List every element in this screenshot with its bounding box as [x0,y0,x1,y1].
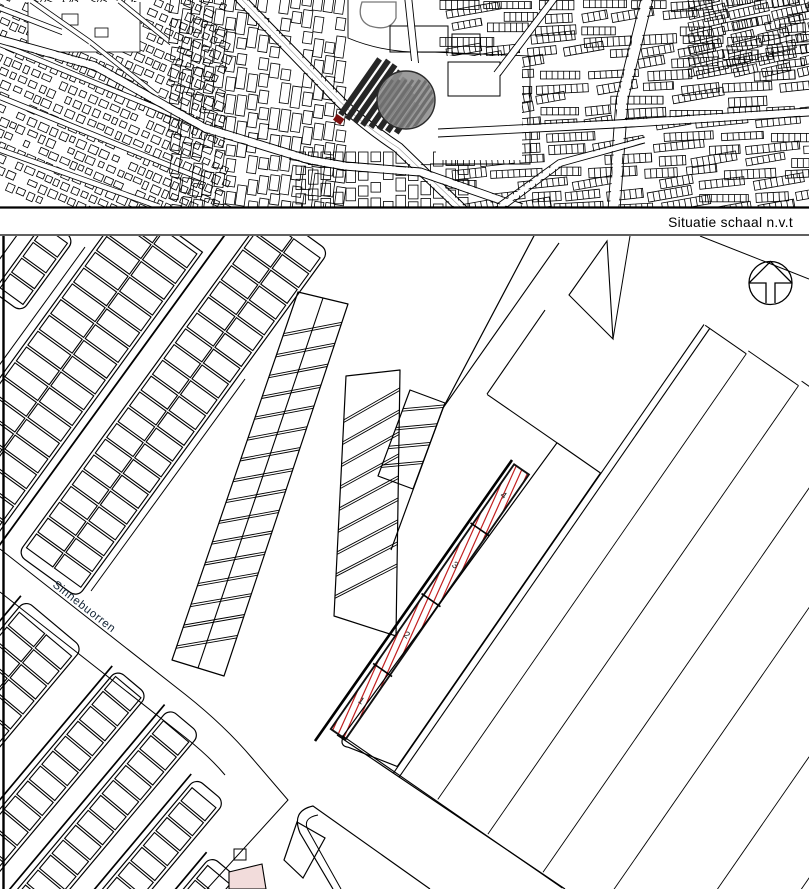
svg-text:Situatie schaal n.v.t: Situatie schaal n.v.t [668,215,793,230]
